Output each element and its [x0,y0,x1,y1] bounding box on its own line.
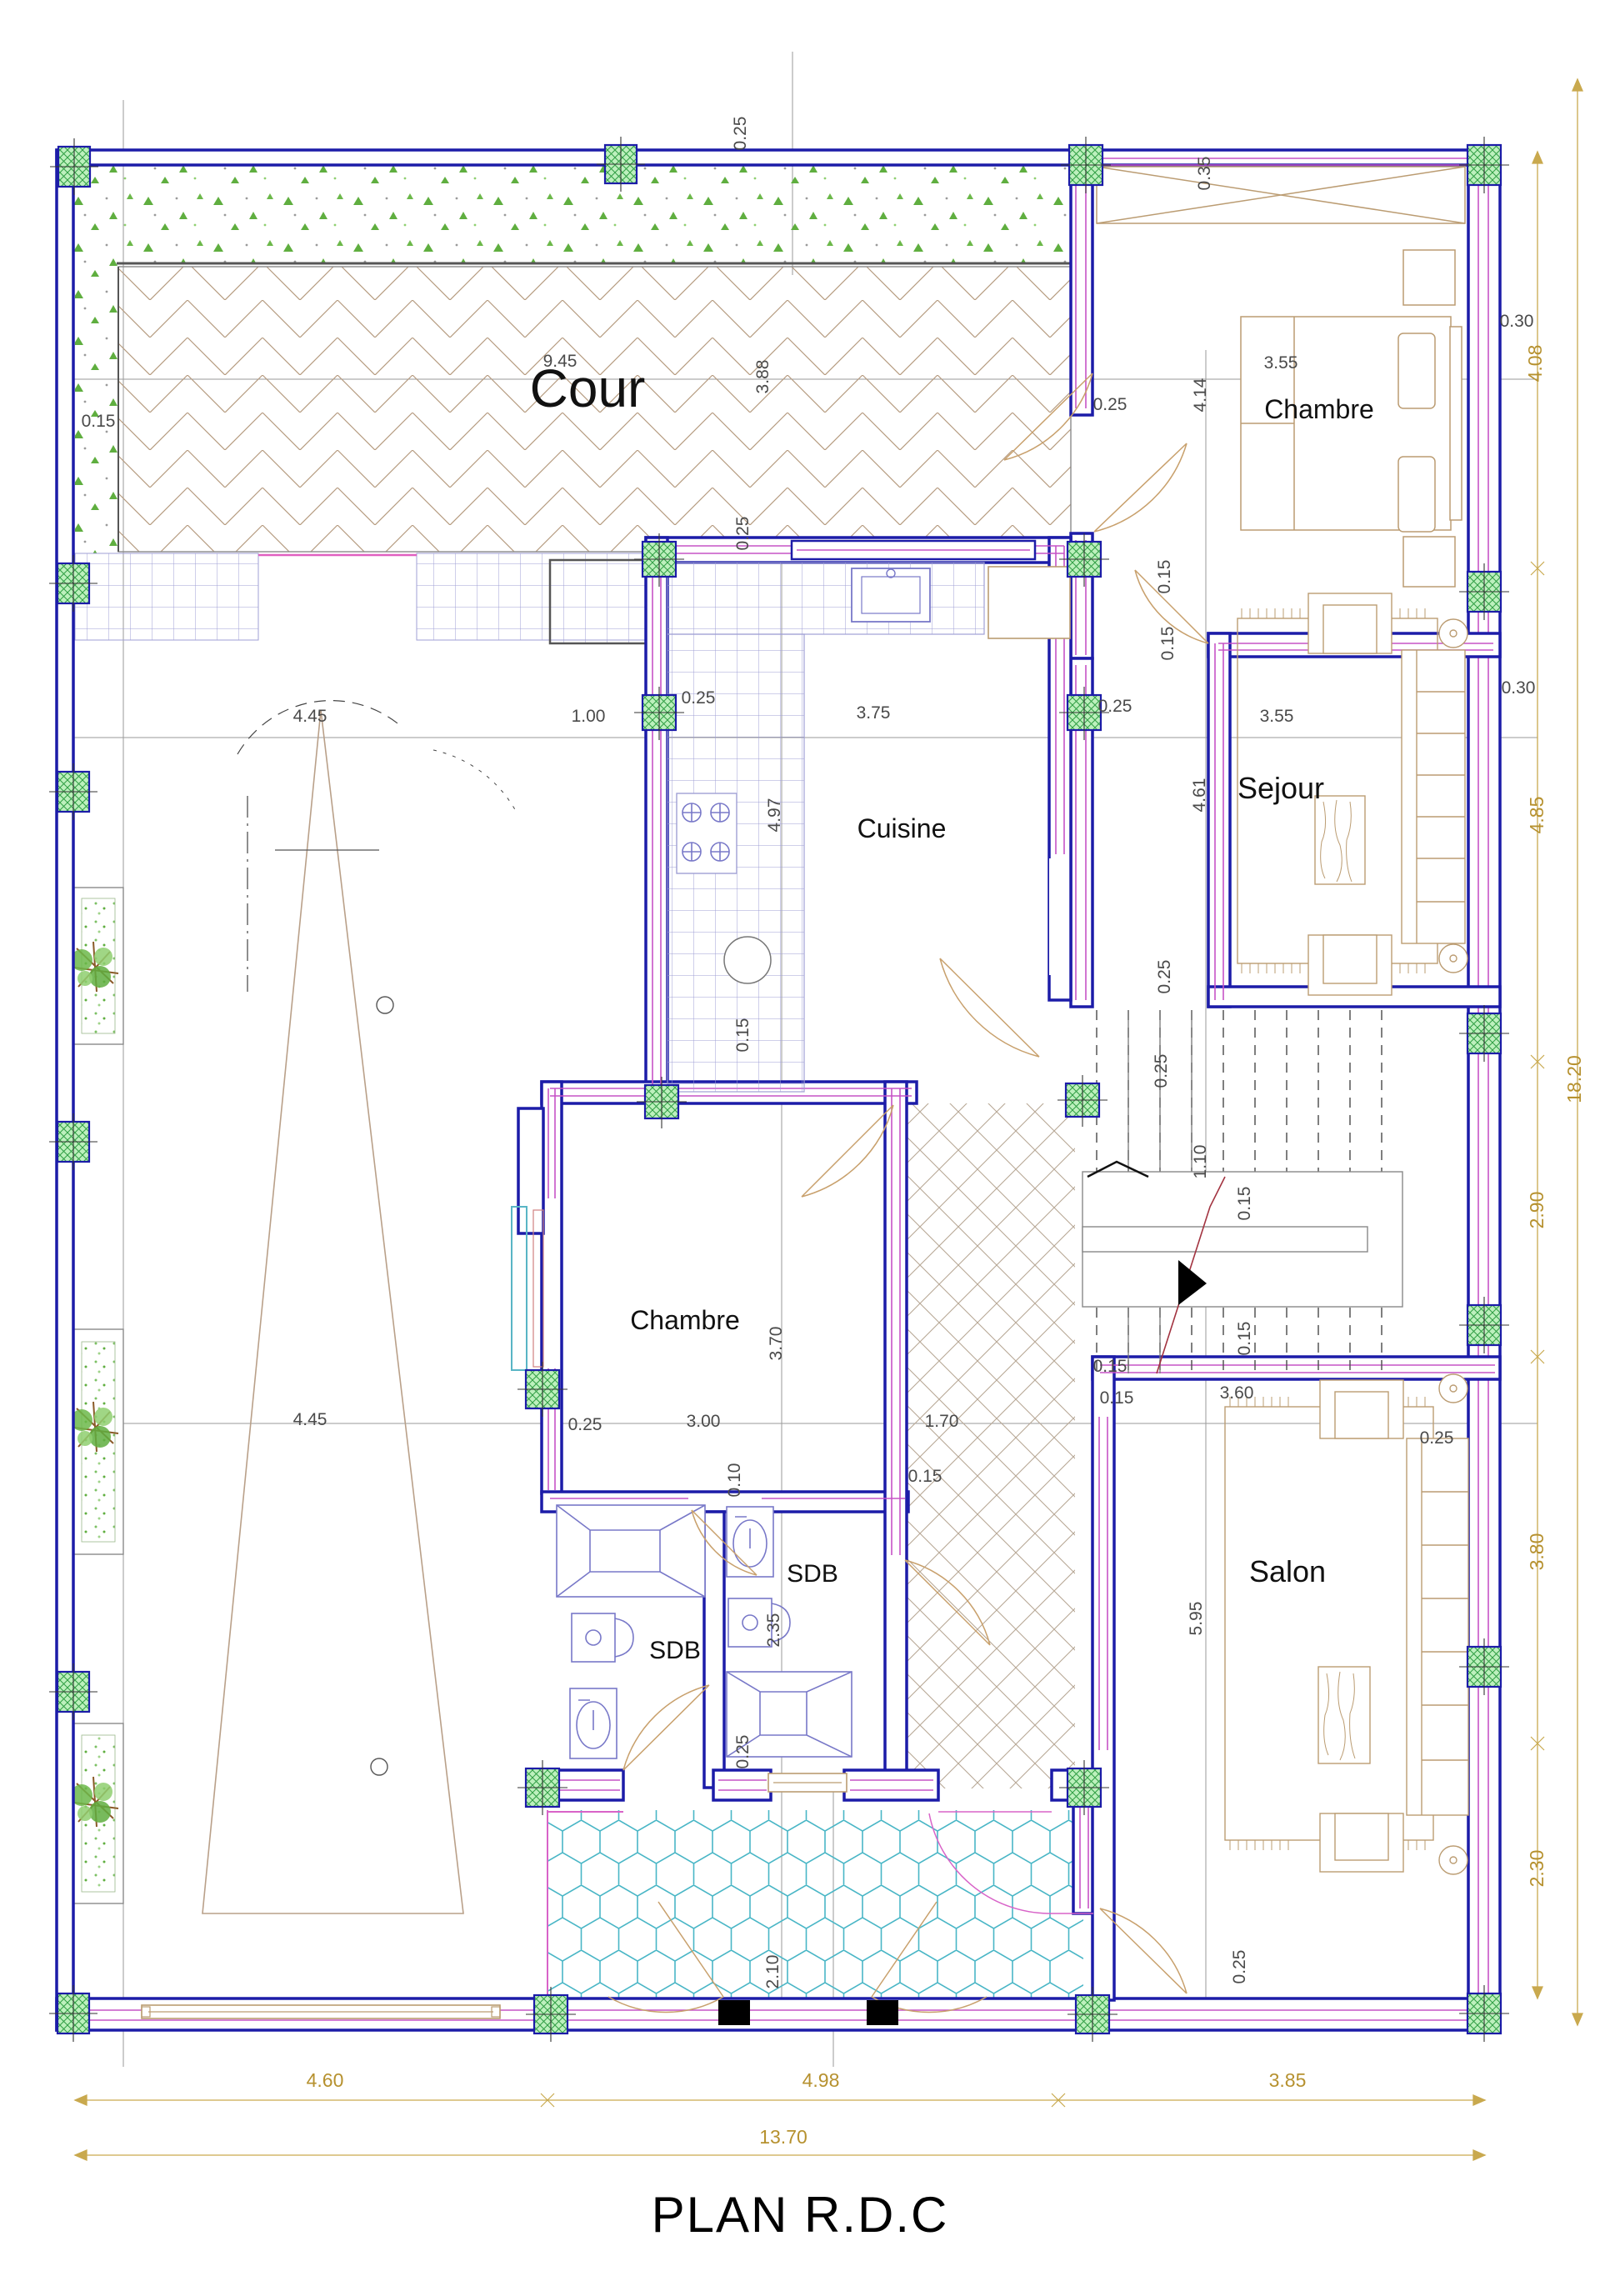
floor-plan-canvas: { "title": { "text": "PLAN R.D.C" }, "ro… [0,0,1600,2296]
pillow [1398,457,1435,532]
dim-label: 4.61 [1190,778,1209,813]
dim-label: 1.70 [925,1412,959,1431]
bedroom-top [1097,167,1465,587]
dim-label: 3.88 [753,360,772,394]
nightstand [1403,537,1455,587]
headboard [1450,327,1462,520]
dim-label: 0.35 [1195,157,1214,191]
dim-label: 3.75 [857,703,891,723]
garden [202,701,517,1913]
dim-label: 3.60 [1220,1383,1254,1403]
dim-label: 1.10 [1191,1145,1210,1179]
door-chambre-mid [802,1105,893,1197]
dim-label: 3.70 [767,1327,786,1361]
pillow [1398,333,1435,408]
door-cuisine [940,958,1039,1057]
salon [1225,1374,1468,1874]
dim-label: 0.25 [682,688,716,708]
room-label: SDB [787,1560,838,1588]
room-label: Chambre [630,1305,740,1335]
bathtub [557,1505,705,1597]
dim-label: 3.00 [687,1412,721,1431]
dim-label: 0.15 [82,412,116,431]
walkway-strip [75,553,650,643]
dim-label: 4.45 [293,1410,327,1429]
dim-label: 4.98 [802,2069,840,2091]
hall-floor [907,1103,1075,1788]
dim-label: 2.30 [1526,1850,1547,1888]
driveway-triangle [202,710,463,1913]
dim-label: 4.14 [1191,378,1210,412]
dim-label: 0.15 [733,1018,752,1053]
dim-label: 0.25 [1093,395,1127,414]
toilet [572,1613,615,1662]
side-table [1439,1846,1467,1874]
dim-label: 0.25 [1155,960,1174,994]
gate [142,2005,500,2018]
counter-top [667,563,984,634]
dim-label: 0.25 [1098,697,1132,716]
dim-label: 4.08 [1524,345,1546,383]
dim-label: 3.85 [1269,2069,1307,2091]
nightstand [1403,250,1455,305]
dim-label: 18.20 [1563,1055,1585,1103]
dim-label: 0.25 [1230,1950,1249,1984]
dim-label: 3.55 [1260,707,1294,726]
fridge [988,567,1070,638]
door-sdb-corridor [623,1685,709,1770]
dim-label: 0.25 [733,517,752,551]
dim-label: 0.25 [733,1735,752,1769]
dim-label: 0.30 [1502,678,1536,698]
dim-label: 2.90 [1526,1192,1547,1229]
dim-label: 2.10 [763,1955,782,1989]
porch-floor [547,1810,1083,2000]
dim-label: 0.25 [1420,1428,1454,1448]
dim-label: 0.25 [568,1415,602,1434]
rug [1225,1407,1433,1840]
dim-label: 4.85 [1526,797,1547,834]
dim-label: 4.45 [293,707,327,726]
room-label: Sejour [1237,771,1324,805]
door-chambre-top [1094,443,1187,532]
dim-label: 1.00 [572,707,606,726]
dim-label: 2.35 [764,1613,783,1648]
side-table [1439,619,1467,648]
room-label: SDB [649,1637,701,1664]
dim-label: 0.30 [1500,312,1534,331]
dim-label: 0.15 [1235,1187,1254,1221]
dim-label: 0.25 [731,117,750,151]
dim-label: 13.70 [759,2126,807,2148]
dim-label: 0.15 [1100,1388,1134,1408]
dim-label: 0.15 [1093,1357,1127,1376]
sofa [1402,650,1465,943]
dim-label: 3.80 [1526,1533,1547,1571]
room-label: Salon [1249,1554,1326,1588]
dim-label: 0.15 [1158,627,1177,661]
plan-title: PLAN R.D.C [652,2187,949,2243]
dim-label: 4.60 [307,2069,344,2091]
dim-label: 0.15 [1235,1322,1254,1356]
paved-corner [550,560,650,643]
dim-label: 0.15 [908,1467,942,1486]
dim-label: 9.45 [543,352,577,371]
side-table [1439,1374,1467,1403]
sofa [1407,1438,1468,1815]
dim-label: 3.55 [1264,353,1298,373]
dim-label: 5.95 [1187,1602,1206,1636]
round-table [724,937,771,983]
floor-plan-drawing: CourChambreCuisineSejourChambreSDBSDBSal… [0,0,1600,2296]
room-label: Cuisine [857,813,947,843]
dim-label: 0.15 [1155,560,1174,594]
room-label: Chambre [1264,394,1374,424]
side-table [1439,944,1467,973]
dim-label: 0.25 [1152,1054,1171,1088]
dim-label: 4.97 [765,798,784,833]
planters [68,888,123,1903]
dim-label: 0.10 [725,1463,744,1498]
